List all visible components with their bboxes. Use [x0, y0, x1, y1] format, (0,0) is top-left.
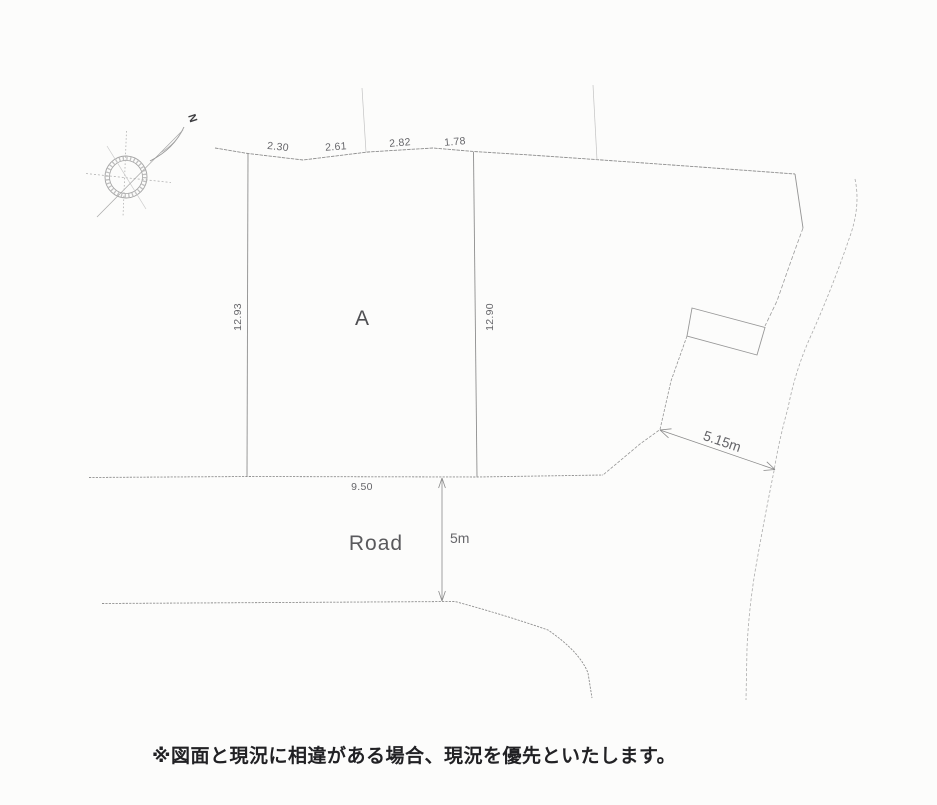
dimension-5-15m: 5.15m [660, 427, 775, 470]
plot-a-label: A [355, 307, 369, 330]
north-arrow-flourish [150, 127, 184, 161]
compass-vertical-axis [123, 131, 127, 217]
dimension-top-segment-4: 1.78 [444, 135, 467, 149]
plot-a-left-line [247, 154, 248, 477]
compass-rose: N [86, 113, 199, 217]
road-top-line [89, 475, 603, 478]
southeast-boundary-line [603, 336, 687, 475]
road-label: Road [349, 532, 403, 555]
dimension-right-side: 12.90 [484, 303, 496, 331]
dimension-left-side: 12.93 [232, 303, 244, 331]
dimension-frontage: 9.50 [351, 481, 373, 493]
dimension-top-segment-1: 2.30 [267, 140, 290, 154]
road-bottom-line [102, 602, 592, 699]
disclaimer-note: ※図面と現況に相違がある場合、現況を優先といたします。 [152, 741, 676, 768]
site-plan-svg: N 5.15m 5m 2.30 2.61 2.82 1.78 12.93 12.… [0, 0, 937, 800]
dimension-label-5-15m: 5.15m [701, 427, 743, 455]
right-curved-boundary [746, 179, 857, 700]
east-boundary-segment [765, 228, 803, 326]
site-plan-canvas: N 5.15m 5m 2.30 2.61 2.82 1.78 12.93 12.… [0, 0, 937, 800]
top-boundary-line [215, 148, 795, 174]
extension-line-right [593, 85, 597, 160]
northeast-boundary-kink [795, 174, 803, 228]
plot-a-right-line [474, 152, 478, 477]
extension-line-left [362, 88, 366, 152]
dimension-top-segment-2: 2.61 [325, 140, 347, 153]
boundary-notch-rect [687, 308, 765, 355]
compass-diagonal-axis [107, 146, 146, 209]
dimension-label-5m: 5m [450, 530, 469, 546]
dimension-5m: 5m [439, 478, 470, 601]
north-label: N [185, 113, 199, 124]
dimension-top-segment-3: 2.82 [389, 136, 412, 150]
